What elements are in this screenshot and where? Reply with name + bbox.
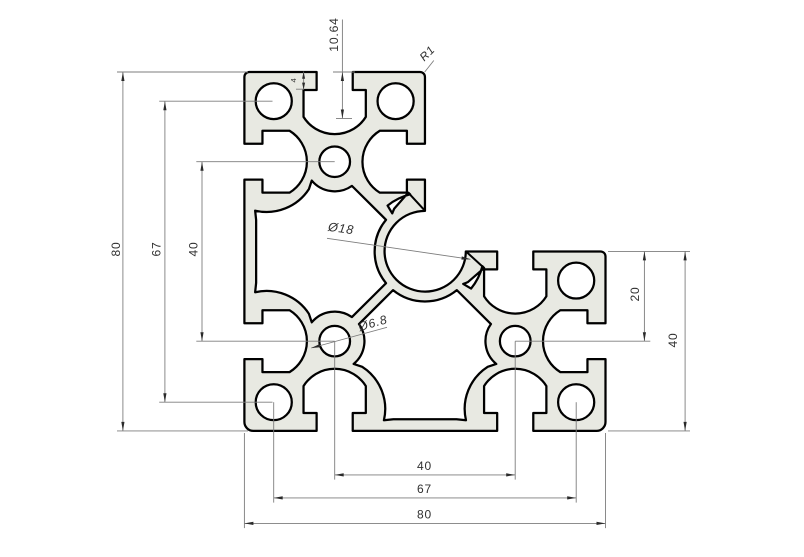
svg-text:10.64: 10.64 bbox=[327, 17, 341, 52]
svg-text:40: 40 bbox=[666, 333, 680, 348]
svg-text:R1: R1 bbox=[418, 44, 438, 64]
svg-text:4: 4 bbox=[289, 78, 298, 83]
svg-text:67: 67 bbox=[150, 242, 164, 257]
svg-text:80: 80 bbox=[417, 508, 432, 522]
svg-text:40: 40 bbox=[187, 242, 201, 257]
svg-text:Ø18: Ø18 bbox=[326, 220, 355, 238]
svg-text:20: 20 bbox=[628, 287, 642, 302]
svg-text:67: 67 bbox=[417, 482, 432, 496]
svg-text:80: 80 bbox=[109, 242, 123, 257]
svg-text:40: 40 bbox=[417, 459, 432, 473]
